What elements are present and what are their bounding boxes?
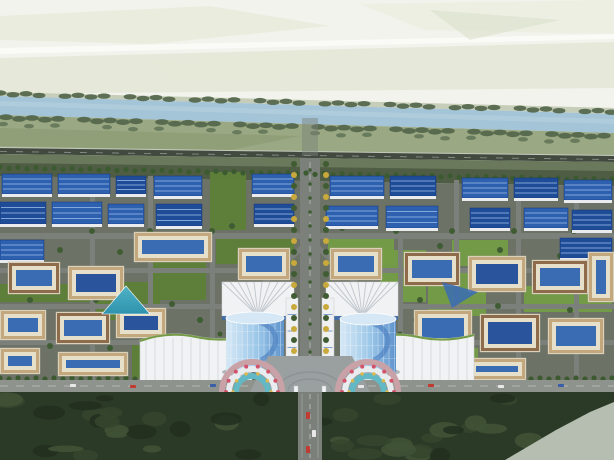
- tree: [497, 247, 503, 253]
- forest-blob: [48, 446, 84, 453]
- tree: [169, 301, 175, 307]
- factory-wall: [0, 224, 46, 227]
- hedge-tree: [456, 175, 461, 180]
- golden-tree: [291, 183, 297, 189]
- golden-tree: [323, 183, 329, 189]
- bank-tree: [168, 121, 182, 127]
- bank-tree: [584, 134, 598, 140]
- bank-tree: [72, 93, 85, 98]
- forest-blob: [333, 408, 359, 422]
- flower-dot: [350, 370, 354, 374]
- bank-tree: [441, 128, 455, 134]
- hedge-tree: [186, 169, 191, 174]
- hedge-tree: [447, 173, 452, 178]
- hedge-tree: [222, 170, 227, 175]
- median-tree: [308, 238, 312, 242]
- hedge-tree: [33, 375, 38, 380]
- hedge-tree: [384, 173, 389, 178]
- factory-wall: [108, 224, 144, 227]
- golden-tree: [323, 216, 329, 222]
- flower-dot: [351, 379, 354, 382]
- courtyard-atrium: [64, 320, 102, 336]
- bank-tree: [202, 96, 215, 101]
- hedge-tree: [15, 375, 20, 380]
- factory-wall: [572, 230, 612, 233]
- forest-blob: [68, 401, 102, 410]
- factory-wall: [116, 194, 146, 197]
- axis-road-north-stub: [302, 118, 318, 156]
- bank-tree: [189, 97, 202, 102]
- bank-tree: [415, 127, 429, 133]
- bank-tree: [362, 133, 372, 137]
- forest-blob: [347, 448, 382, 459]
- courtyard-atrium: [338, 256, 374, 272]
- tree: [47, 343, 53, 349]
- median-tree: [308, 336, 312, 340]
- courtyard-atrium: [596, 260, 606, 294]
- factory-wall: [524, 228, 568, 231]
- golden-tree: [323, 172, 329, 178]
- flower-dot: [234, 370, 238, 374]
- hedge-tree: [573, 375, 578, 380]
- golden-tree: [291, 348, 297, 354]
- courtyard-atrium: [422, 318, 464, 338]
- bank-tree: [519, 130, 533, 136]
- golden-tree: [323, 337, 329, 343]
- factory-wall: [2, 194, 52, 197]
- flower-dot: [273, 379, 277, 383]
- median-tree: [308, 168, 312, 172]
- forest-blob: [443, 426, 464, 434]
- median-tree: [308, 350, 312, 354]
- golden-tree: [291, 293, 297, 299]
- bank-tree: [545, 131, 559, 137]
- flower-dot: [244, 372, 247, 375]
- courtyard-atrium: [412, 260, 452, 278]
- hedge-tree: [33, 165, 38, 170]
- courtyard-atrium: [142, 240, 204, 254]
- hedge-tree: [51, 165, 56, 170]
- factory-wall: [52, 224, 102, 227]
- car: [558, 384, 564, 387]
- golden-tree: [291, 238, 297, 244]
- bank-tree: [102, 125, 112, 129]
- factory-wall: [514, 198, 558, 201]
- bank-tree: [345, 102, 358, 107]
- bank-tree: [493, 130, 507, 136]
- rendering-stage: [0, 0, 614, 460]
- bank-tree: [137, 96, 150, 101]
- bank-tree: [350, 126, 364, 132]
- hedge-tree: [537, 375, 542, 380]
- bank-tree: [258, 130, 268, 134]
- bank-tree: [363, 126, 377, 132]
- forest-blob: [235, 449, 261, 459]
- bank-tree: [423, 104, 436, 109]
- hedge-tree: [177, 168, 182, 173]
- golden-tree: [323, 282, 329, 288]
- golden-tree: [323, 249, 329, 255]
- hedge-tree: [15, 165, 20, 170]
- flower-dot: [360, 372, 363, 375]
- golden-tree: [291, 260, 297, 266]
- tree: [229, 223, 235, 229]
- factory-wall: [470, 228, 510, 231]
- flower-dot: [256, 372, 259, 375]
- bank-tree: [570, 139, 580, 143]
- hedge-tree: [231, 169, 236, 174]
- car: [358, 385, 364, 388]
- hedge-tree: [195, 168, 200, 173]
- bank-tree: [337, 125, 351, 131]
- bank-tree: [103, 118, 117, 124]
- car: [130, 385, 136, 388]
- courtyard-atrium: [556, 326, 596, 346]
- median-tree: [308, 252, 312, 256]
- forest-blob: [170, 421, 191, 437]
- bank-tree: [116, 119, 130, 125]
- bank-tree: [410, 102, 423, 107]
- bank-tree: [553, 108, 566, 113]
- bank-tree: [12, 116, 26, 122]
- hedge-tree: [213, 169, 218, 174]
- tower-roof: [340, 313, 396, 325]
- flower-dot: [360, 365, 364, 369]
- golden-tree: [291, 326, 297, 332]
- bank-tree: [206, 128, 216, 132]
- hedge-tree: [141, 167, 146, 172]
- golden-tree: [323, 194, 329, 200]
- factory-wall: [156, 226, 202, 229]
- hedge-tree: [96, 168, 101, 173]
- bank-tree: [462, 104, 475, 109]
- hedge-tree: [78, 167, 83, 172]
- bank-tree: [579, 109, 592, 114]
- car: [70, 384, 76, 387]
- median-tree: [308, 210, 312, 214]
- golden-tree: [323, 293, 329, 299]
- industrial-park-aerial-rendering: [0, 0, 614, 460]
- bank-tree: [33, 93, 46, 98]
- bank-tree: [272, 124, 286, 130]
- factory-wall: [386, 228, 438, 231]
- hedge-tree: [438, 174, 443, 179]
- bank-tree: [540, 106, 553, 111]
- golden-tree: [291, 282, 297, 288]
- forest-blob: [210, 412, 241, 425]
- forest-blob: [95, 415, 120, 428]
- courtyard-atrium: [76, 274, 116, 292]
- car: [498, 385, 504, 388]
- hedge-tree: [105, 167, 110, 172]
- fan-hall-roof: [326, 282, 398, 316]
- bank-tree: [254, 98, 267, 103]
- golden-tree: [291, 205, 297, 211]
- bank-tree: [232, 130, 242, 134]
- factory-wall: [154, 196, 202, 199]
- forest-blob: [490, 394, 515, 403]
- golden-tree: [323, 348, 329, 354]
- hedge-tree: [51, 375, 56, 380]
- bank-tree: [124, 94, 137, 99]
- hedge-tree: [114, 168, 119, 173]
- golden-tree: [323, 227, 329, 233]
- car: [210, 384, 216, 387]
- golden-tree: [291, 172, 297, 178]
- flower-dot: [382, 379, 385, 382]
- car: [306, 412, 310, 419]
- bank-tree: [155, 119, 169, 125]
- courtyard-atrium: [540, 268, 580, 286]
- median-tree: [308, 224, 312, 228]
- bank-tree: [293, 100, 306, 105]
- bank-tree: [24, 124, 34, 128]
- hedge-tree: [69, 166, 74, 171]
- bank-tree: [397, 103, 410, 108]
- bank-tree: [51, 116, 65, 122]
- bank-tree: [514, 106, 527, 111]
- bank-tree: [259, 122, 273, 128]
- flower-dot: [266, 379, 269, 382]
- bank-tree: [181, 120, 195, 126]
- factory-wall: [252, 194, 294, 197]
- courtyard-atrium: [476, 366, 518, 372]
- courtyard-atrium: [8, 318, 38, 332]
- hedge-tree: [132, 168, 137, 173]
- tree: [437, 243, 443, 249]
- bank-tree: [467, 129, 481, 135]
- tree: [57, 247, 63, 253]
- bank-tree: [150, 95, 163, 100]
- flower-dot: [343, 379, 347, 383]
- golden-tree: [323, 304, 329, 310]
- hedge-tree: [204, 170, 209, 175]
- hedge-tree: [87, 166, 92, 171]
- hedge-tree: [240, 170, 245, 175]
- golden-tree: [323, 161, 329, 167]
- median-tree: [308, 196, 312, 200]
- golden-tree: [291, 216, 297, 222]
- golden-tree: [291, 271, 297, 277]
- factory-wall: [58, 194, 110, 197]
- tree: [197, 317, 203, 323]
- courtyard-atrium: [16, 270, 52, 286]
- tower-roof: [226, 312, 284, 324]
- bank-tree: [475, 106, 488, 111]
- forest-blob: [33, 405, 65, 419]
- factory-wall: [390, 196, 436, 199]
- bank-tree: [480, 130, 494, 136]
- golden-tree: [291, 315, 297, 321]
- car: [428, 384, 434, 387]
- bank-tree: [20, 91, 33, 96]
- bank-tree: [85, 94, 98, 99]
- hedge-tree: [218, 332, 223, 337]
- factory-wall: [254, 224, 294, 227]
- hedge-tree: [60, 167, 65, 172]
- hedge-tree: [555, 375, 560, 380]
- hedge-tree: [339, 171, 344, 176]
- bank-tree: [154, 126, 164, 130]
- bank-tree: [50, 123, 60, 127]
- bank-tree: [414, 134, 424, 138]
- bank-tree: [571, 132, 585, 138]
- bank-tree: [449, 105, 462, 110]
- car: [312, 430, 316, 437]
- golden-tree: [291, 304, 297, 310]
- bank-tree: [324, 126, 338, 132]
- bank-tree: [336, 133, 346, 137]
- bank-tree: [246, 123, 260, 129]
- bank-tree: [358, 101, 371, 106]
- flower-dot: [372, 365, 376, 369]
- forest-blob: [465, 415, 487, 430]
- factory-wall: [462, 198, 508, 201]
- golden-tree: [323, 271, 329, 277]
- bank-tree: [215, 98, 228, 103]
- forest-blob: [125, 425, 157, 440]
- tree: [417, 297, 423, 303]
- hedge-tree: [24, 166, 29, 171]
- hedge-tree: [150, 169, 155, 174]
- tree: [511, 228, 517, 234]
- bank-tree: [98, 93, 111, 98]
- lawn: [210, 172, 246, 230]
- flower-dot: [389, 379, 393, 383]
- flower-dot: [227, 379, 231, 383]
- bank-tree: [59, 94, 72, 99]
- bank-tree: [440, 136, 450, 140]
- bank-tree: [228, 97, 241, 102]
- bank-tree: [77, 117, 91, 123]
- bank-tree: [285, 123, 299, 129]
- bank-tree: [506, 131, 520, 137]
- bank-tree: [592, 108, 605, 113]
- bank-tree: [128, 127, 138, 131]
- flower-dot: [266, 370, 270, 374]
- golden-tree: [323, 315, 329, 321]
- bank-tree: [527, 107, 540, 112]
- bank-tree: [267, 100, 280, 105]
- courtyard-atrium: [8, 356, 32, 366]
- hedge-tree: [6, 166, 11, 171]
- bank-tree: [194, 122, 208, 128]
- bank-tree: [428, 129, 442, 135]
- tree: [107, 345, 113, 351]
- bank-tree: [466, 136, 476, 140]
- forest-blob: [331, 440, 354, 452]
- forest-blob: [357, 435, 392, 446]
- bank-tree: [384, 102, 397, 107]
- tree: [117, 249, 123, 255]
- golden-tree: [323, 205, 329, 211]
- bank-tree: [7, 92, 20, 97]
- courtyard-atrium: [66, 360, 120, 368]
- bank-tree: [25, 115, 39, 121]
- median-tree: [308, 280, 312, 284]
- bank-tree: [518, 137, 528, 141]
- courtyard-atrium: [476, 264, 518, 284]
- fan-hall-roof: [222, 282, 294, 316]
- forest-blob: [142, 412, 166, 426]
- hedge-tree: [42, 166, 47, 171]
- bank-tree: [129, 118, 143, 124]
- bank-tree: [544, 139, 554, 143]
- forest-blob: [143, 445, 161, 452]
- median-tree: [308, 294, 312, 298]
- bank-tree: [597, 133, 611, 139]
- bank-tree: [488, 105, 501, 110]
- flower-dot: [244, 365, 248, 369]
- bank-tree: [558, 133, 572, 139]
- bank-tree: [402, 128, 416, 134]
- median-tree: [308, 322, 312, 326]
- tree: [449, 228, 455, 234]
- factory-wall: [564, 200, 612, 203]
- golden-tree: [291, 249, 297, 255]
- golden-tree: [291, 194, 297, 200]
- forest-blob: [253, 392, 269, 406]
- tree: [567, 307, 573, 313]
- median-tree: [308, 308, 312, 312]
- bank-tree: [233, 122, 247, 128]
- hedge-tree: [303, 170, 308, 175]
- golden-tree: [323, 326, 329, 332]
- tree: [89, 228, 95, 234]
- bank-tree: [207, 121, 221, 127]
- flower-dot: [256, 365, 260, 369]
- hedge-tree: [249, 169, 254, 174]
- bank-tree: [90, 118, 104, 124]
- factory-wall: [326, 226, 378, 229]
- tree: [495, 303, 501, 309]
- hedge-tree: [123, 167, 128, 172]
- golden-tree: [291, 227, 297, 233]
- forest-blob: [96, 395, 114, 401]
- bank-tree: [389, 126, 403, 132]
- courtyard-atrium: [124, 316, 158, 330]
- median-tree: [308, 182, 312, 186]
- golden-tree: [323, 260, 329, 266]
- hedge-tree: [312, 172, 317, 177]
- bank-tree: [280, 99, 293, 104]
- golden-tree: [291, 337, 297, 343]
- courtyard-atrium: [488, 322, 532, 344]
- courtyard-atrium: [246, 256, 282, 272]
- bank-tree: [332, 100, 345, 105]
- factory-wall: [330, 196, 384, 199]
- forest-blob: [373, 393, 401, 405]
- car: [306, 446, 310, 453]
- hedge-tree: [159, 168, 164, 173]
- flower-dot: [372, 372, 375, 375]
- hedge-tree: [591, 375, 596, 380]
- tree: [27, 297, 33, 303]
- bank-tree: [163, 97, 176, 102]
- hedge-tree: [168, 169, 173, 174]
- flower-dot: [382, 370, 386, 374]
- flower-dot: [235, 379, 238, 382]
- golden-tree: [291, 161, 297, 167]
- golden-tree: [323, 238, 329, 244]
- bank-tree: [38, 117, 52, 123]
- bank-tree: [319, 101, 332, 106]
- median-tree: [308, 266, 312, 270]
